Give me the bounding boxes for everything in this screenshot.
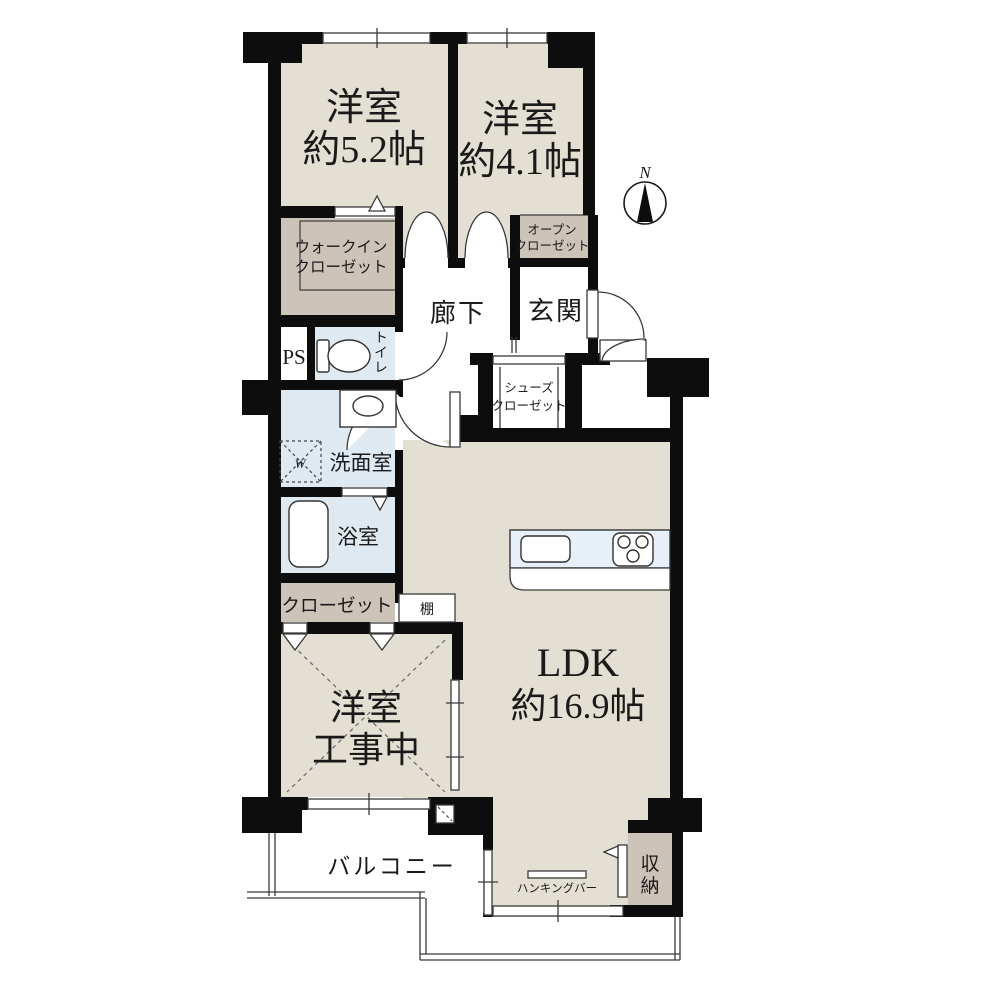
bedroom1-size: 約5.2帖 [302, 129, 426, 171]
storage-door-leaf [618, 845, 627, 897]
walk-in-closet-label-line2: クローゼット [294, 258, 387, 276]
shoes-closet-door [493, 356, 565, 364]
front-door-arc [598, 292, 644, 338]
entrance-label: 玄関 [528, 297, 584, 326]
toilet-icon [317, 340, 370, 372]
bathroom-label: 浴室 [337, 525, 379, 549]
open-closet-label-line1: オープン [527, 223, 576, 237]
hallway-label: 廊下 [430, 299, 486, 328]
storage-label-char2: 納 [640, 875, 659, 897]
balcony-label: バルコニー [327, 854, 457, 879]
closet-label: クローゼット [281, 596, 392, 617]
ldk-door-arc [395, 392, 450, 447]
storage-label-char1: 収 [640, 853, 659, 875]
washroom-label: 洗面室 [330, 451, 393, 475]
shoes-closet-label-line1: シューズ [504, 380, 553, 395]
shelf-label: 棚 [420, 602, 434, 618]
open-closet-label-line2: クローゼット [514, 239, 589, 253]
walk-in-closet-label-line1: ウォークイン [294, 238, 387, 256]
hanging-bar-label: ハンキングバー [517, 881, 597, 895]
pillar-icon [436, 805, 454, 823]
hanging-bar-icon [528, 871, 586, 878]
bedroom1-name: 洋室 [326, 87, 402, 129]
washer-mark: W [295, 456, 307, 471]
front-door-leaf [587, 290, 598, 338]
bedroom2-name: 洋室 [482, 99, 558, 141]
toilet-label-char2: イ [374, 345, 388, 360]
bedroom3-name: 洋室 [330, 688, 402, 728]
ldk-size: 約16.9帖 [510, 686, 645, 726]
bedroom2-size: 約4.1帖 [458, 141, 582, 183]
north-arrow-icon: N [624, 163, 666, 224]
pipe-space-label: PS [282, 345, 305, 369]
toilet-label-char1: ト [374, 330, 388, 345]
toilet-door-arc [399, 332, 447, 380]
north-label: N [638, 163, 652, 182]
floor-plan-canvas: N 洋室 約5.2帖 洋室 約4.1帖 ウォークイン クローゼット オープン ク… [0, 0, 1000, 1000]
bathtub-icon [289, 501, 328, 567]
bedroom3-status: 工事中 [312, 730, 420, 770]
toilet-label-char3: レ [374, 360, 388, 375]
ldk-door-leaf [450, 392, 460, 447]
sink-icon [340, 390, 396, 427]
ldk-name: LDK [537, 640, 619, 685]
kitchen-counter [510, 530, 670, 590]
stove-icon [613, 533, 653, 566]
floor-plan-page: N 洋室 約5.2帖 洋室 約4.1帖 ウォークイン クローゼット オープン ク… [0, 0, 1000, 1000]
shoes-closet-label-line2: クローゼット [491, 399, 566, 413]
kitchen-sink-icon [521, 536, 570, 562]
